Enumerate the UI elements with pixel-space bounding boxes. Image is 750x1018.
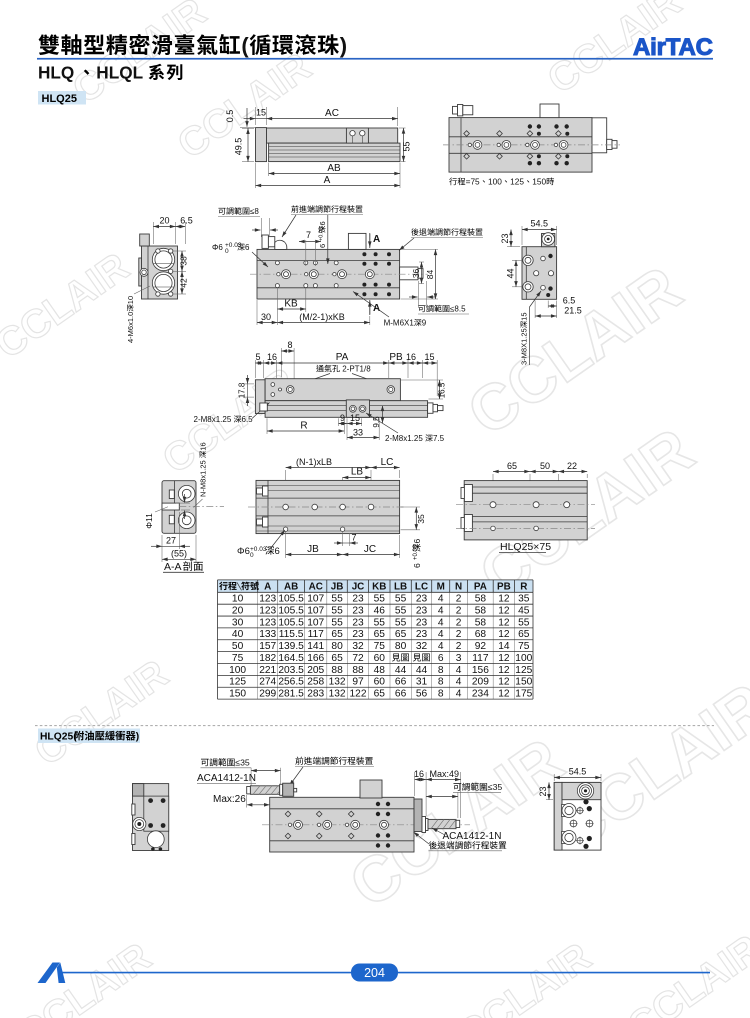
- svg-text:23: 23: [416, 629, 428, 640]
- svg-text:60: 60: [374, 653, 386, 664]
- svg-text:80: 80: [331, 641, 343, 652]
- svg-text:JC: JC: [352, 581, 365, 592]
- svg-text:JB: JB: [307, 544, 319, 555]
- svg-text:6.5: 6.5: [180, 216, 193, 226]
- svg-text:R: R: [520, 581, 527, 592]
- svg-text:55: 55: [331, 617, 343, 628]
- svg-text:Φ6: Φ6: [212, 243, 223, 252]
- svg-text:23: 23: [416, 617, 428, 628]
- svg-text:123: 123: [259, 617, 276, 628]
- svg-text:ACA1412-1N: ACA1412-1N: [197, 773, 256, 784]
- svg-text:182: 182: [259, 653, 276, 664]
- svg-text:2-PT1/8: 2-PT1/8: [340, 365, 371, 374]
- svg-text:KB: KB: [284, 299, 298, 310]
- svg-text:16: 16: [406, 352, 416, 362]
- svg-text:12: 12: [498, 605, 510, 616]
- svg-text:LC: LC: [381, 457, 394, 468]
- svg-text:105.5: 105.5: [278, 617, 304, 628]
- svg-text:≤35: ≤35: [488, 782, 503, 792]
- svg-text:35: 35: [416, 514, 426, 524]
- svg-text:12: 12: [498, 629, 510, 640]
- svg-text:36: 36: [411, 269, 421, 279]
- svg-text:=75: =75: [466, 177, 480, 187]
- svg-text:50: 50: [540, 461, 550, 471]
- svg-text:65: 65: [507, 461, 517, 471]
- svg-text:27: 27: [166, 536, 176, 546]
- svg-text:23: 23: [352, 629, 364, 640]
- svg-text:21.5: 21.5: [564, 306, 582, 316]
- svg-text:84: 84: [425, 270, 435, 280]
- svg-text:58: 58: [475, 594, 487, 605]
- svg-text:54.5: 54.5: [569, 767, 587, 777]
- svg-text:6: 6: [438, 653, 444, 664]
- svg-text:23: 23: [500, 233, 510, 243]
- svg-text:42: 42: [179, 278, 189, 288]
- svg-text:2: 2: [456, 641, 462, 652]
- svg-text:107: 107: [307, 594, 324, 605]
- svg-text:65: 65: [395, 629, 407, 640]
- svg-text:166: 166: [307, 653, 324, 664]
- svg-text:JB: JB: [331, 581, 344, 592]
- svg-text:44: 44: [506, 268, 516, 278]
- svg-text:164.5: 164.5: [278, 653, 304, 664]
- svg-text:23: 23: [352, 605, 364, 616]
- svg-text:115.5: 115.5: [279, 629, 304, 640]
- svg-text:46: 46: [374, 605, 386, 616]
- svg-text:4: 4: [456, 665, 462, 676]
- svg-text:157: 157: [259, 641, 276, 652]
- svg-text:0.5: 0.5: [225, 110, 235, 123]
- svg-text:(N-1)xLB: (N-1)xLB: [296, 457, 332, 467]
- svg-text:2-M8x1.25: 2-M8x1.25: [194, 415, 234, 424]
- svg-text:AirTAC: AirTAC: [633, 34, 713, 61]
- svg-text:45: 45: [518, 605, 530, 616]
- svg-text:30: 30: [232, 617, 244, 628]
- svg-text:209: 209: [472, 677, 489, 688]
- svg-text:105.5: 105.5: [278, 605, 304, 616]
- svg-text:66: 66: [395, 677, 407, 688]
- svg-text:12: 12: [498, 653, 510, 664]
- svg-text:): ): [340, 33, 347, 58]
- svg-text:KB: KB: [372, 581, 386, 592]
- svg-text:23: 23: [538, 786, 548, 796]
- svg-text:283: 283: [307, 689, 324, 700]
- svg-text:6: 6: [275, 546, 280, 557]
- svg-text:8: 8: [438, 677, 444, 688]
- svg-text:AB: AB: [327, 163, 341, 174]
- svg-text:205: 205: [307, 665, 324, 676]
- svg-text:15: 15: [350, 413, 360, 423]
- svg-text:3-M8X1.25: 3-M8X1.25: [520, 328, 529, 365]
- svg-text:258: 258: [307, 677, 324, 688]
- svg-text:65: 65: [331, 653, 343, 664]
- svg-text:23: 23: [352, 617, 364, 628]
- svg-text:4: 4: [438, 641, 444, 652]
- svg-text:55: 55: [374, 617, 386, 628]
- svg-text:N: N: [455, 581, 462, 592]
- svg-text:75: 75: [232, 653, 244, 664]
- svg-text:15: 15: [256, 108, 266, 118]
- svg-text:50: 50: [232, 641, 244, 652]
- svg-text:A: A: [324, 175, 331, 186]
- svg-text:58: 58: [475, 605, 487, 616]
- svg-text:AC: AC: [309, 581, 323, 592]
- svg-text:AB: AB: [284, 581, 298, 592]
- svg-text:72: 72: [352, 653, 364, 664]
- svg-text:Max:26: Max:26: [213, 794, 246, 805]
- svg-text:15: 15: [424, 352, 434, 362]
- svg-text:HLQL: HLQL: [96, 63, 143, 83]
- svg-text:150: 150: [515, 677, 532, 688]
- svg-text:2: 2: [456, 629, 462, 640]
- svg-text:2: 2: [456, 605, 462, 616]
- svg-text:16: 16: [267, 352, 277, 362]
- svg-text:20: 20: [159, 216, 169, 226]
- svg-text:≤8.5: ≤8.5: [450, 305, 466, 314]
- svg-text:40: 40: [232, 629, 244, 640]
- svg-text:LB: LB: [351, 467, 364, 478]
- svg-text:15: 15: [520, 312, 529, 320]
- svg-text:23: 23: [416, 594, 428, 605]
- svg-text:6: 6: [318, 221, 327, 225]
- svg-text:132: 132: [329, 677, 346, 688]
- svg-text:LB: LB: [394, 581, 407, 592]
- svg-text:4-M6x1.0: 4-M6x1.0: [126, 312, 135, 343]
- svg-text:44: 44: [395, 665, 407, 676]
- svg-text:6.5: 6.5: [242, 415, 254, 424]
- svg-text:123: 123: [259, 605, 276, 616]
- svg-text:(: (: [241, 33, 249, 58]
- svg-text:N-M8x1.25: N-M8x1.25: [199, 458, 208, 497]
- svg-text:30: 30: [261, 312, 271, 322]
- svg-text:M: M: [437, 581, 445, 592]
- svg-text:55: 55: [331, 605, 343, 616]
- svg-text:4: 4: [438, 605, 444, 616]
- svg-text:55: 55: [395, 594, 407, 605]
- svg-text:133: 133: [259, 629, 276, 640]
- svg-text:12: 12: [498, 594, 510, 605]
- svg-text:8: 8: [438, 665, 444, 676]
- svg-text:PB: PB: [497, 581, 511, 592]
- svg-text:7.5: 7.5: [433, 434, 445, 443]
- svg-text:8: 8: [438, 689, 444, 700]
- svg-text:A: A: [373, 234, 380, 245]
- svg-text:≤8: ≤8: [250, 207, 259, 216]
- svg-text:20: 20: [232, 605, 244, 616]
- svg-text:117: 117: [308, 629, 325, 640]
- svg-text:68: 68: [475, 629, 487, 640]
- svg-text:175: 175: [515, 689, 532, 700]
- svg-text:JC: JC: [364, 544, 376, 555]
- svg-text:107: 107: [307, 605, 324, 616]
- svg-text:150: 150: [532, 177, 546, 187]
- svg-text:65: 65: [518, 629, 530, 640]
- svg-text:Max:49: Max:49: [430, 769, 460, 779]
- svg-text:66: 66: [395, 689, 407, 700]
- svg-text:4: 4: [438, 617, 444, 628]
- svg-text:55: 55: [518, 617, 530, 628]
- svg-text:23: 23: [416, 605, 428, 616]
- svg-text:12: 12: [498, 617, 510, 628]
- svg-text:3: 3: [456, 653, 462, 664]
- svg-text:2: 2: [456, 617, 462, 628]
- svg-text:23: 23: [352, 594, 364, 605]
- svg-text:150: 150: [229, 689, 246, 700]
- svg-text:4: 4: [456, 689, 462, 700]
- svg-text:6.5: 6.5: [563, 296, 576, 306]
- svg-text:HLQ: HLQ: [38, 63, 74, 83]
- svg-text:65: 65: [374, 689, 386, 700]
- svg-text:122: 122: [350, 689, 367, 700]
- svg-text:10: 10: [126, 296, 135, 304]
- svg-text:75: 75: [518, 641, 530, 652]
- svg-text:4: 4: [438, 629, 444, 640]
- svg-text:123: 123: [259, 594, 276, 605]
- svg-text:125: 125: [229, 677, 246, 688]
- svg-text:4: 4: [456, 677, 462, 688]
- svg-text:274: 274: [259, 677, 276, 688]
- svg-text:44: 44: [416, 665, 428, 676]
- svg-text:6: 6: [245, 243, 250, 252]
- svg-text:A-A: A-A: [164, 561, 182, 573]
- svg-text:100: 100: [229, 665, 246, 676]
- svg-text:(55): (55): [171, 549, 187, 559]
- svg-text:32: 32: [416, 641, 428, 652]
- svg-text:31: 31: [416, 677, 428, 688]
- svg-text:80: 80: [395, 641, 407, 652]
- svg-text:6: 6: [412, 563, 422, 568]
- svg-text:55: 55: [374, 594, 386, 605]
- svg-text:Φ6: Φ6: [237, 546, 250, 557]
- svg-text:PA: PA: [474, 581, 487, 592]
- svg-text:100: 100: [515, 653, 532, 664]
- svg-text:6: 6: [412, 539, 422, 544]
- svg-text:49.5: 49.5: [234, 138, 244, 156]
- svg-text:HLQ25×75: HLQ25×75: [500, 541, 551, 553]
- svg-text:17.8: 17.8: [238, 382, 247, 398]
- svg-text:100: 100: [488, 177, 502, 187]
- svg-text:56: 56: [416, 689, 428, 700]
- svg-text:234: 234: [472, 689, 489, 700]
- svg-text:4: 4: [438, 594, 444, 605]
- svg-text:16: 16: [199, 442, 208, 450]
- svg-text:58: 58: [475, 617, 487, 628]
- svg-text:221: 221: [259, 665, 276, 676]
- svg-text:8: 8: [287, 340, 292, 350]
- svg-text:125: 125: [510, 177, 524, 187]
- svg-text:65: 65: [374, 629, 386, 640]
- svg-text:32: 32: [352, 641, 364, 652]
- svg-text:60: 60: [374, 677, 386, 688]
- svg-text:55: 55: [395, 617, 407, 628]
- svg-text:139.5: 139.5: [278, 641, 304, 652]
- svg-text:55: 55: [331, 594, 343, 605]
- svg-text:A: A: [264, 581, 271, 592]
- svg-text:PA: PA: [336, 352, 349, 363]
- svg-text:5: 5: [255, 352, 260, 362]
- svg-text:2: 2: [456, 594, 462, 605]
- svg-text:55: 55: [395, 605, 407, 616]
- svg-text:33: 33: [353, 428, 363, 438]
- svg-text:97: 97: [352, 677, 364, 688]
- svg-text:ACA1412-1N: ACA1412-1N: [443, 831, 502, 842]
- svg-text:22: 22: [567, 461, 577, 471]
- svg-text:75: 75: [374, 641, 386, 652]
- svg-text:12: 12: [498, 677, 510, 688]
- svg-text:256.5: 256.5: [278, 677, 304, 688]
- svg-text:7: 7: [351, 533, 356, 543]
- svg-text:88: 88: [331, 665, 343, 676]
- svg-text:16.5: 16.5: [438, 382, 447, 398]
- svg-text:7: 7: [306, 230, 311, 240]
- svg-text:54.5: 54.5: [531, 219, 549, 229]
- svg-text:): ): [136, 732, 139, 743]
- svg-text:9: 9: [422, 319, 427, 328]
- svg-text:6: 6: [318, 244, 327, 248]
- svg-text:14: 14: [498, 641, 510, 652]
- svg-text:203.5: 203.5: [278, 665, 304, 676]
- svg-text:≤35: ≤35: [235, 758, 250, 768]
- svg-text:141: 141: [307, 641, 324, 652]
- svg-text:9: 9: [340, 413, 345, 423]
- svg-text:LC: LC: [415, 581, 428, 592]
- svg-text:12: 12: [498, 689, 510, 700]
- svg-text:0: 0: [225, 248, 229, 255]
- svg-text:117: 117: [472, 653, 489, 664]
- svg-text:16: 16: [414, 769, 424, 779]
- svg-text:132: 132: [329, 689, 346, 700]
- svg-text:92: 92: [475, 641, 487, 652]
- svg-text:M-M6X1: M-M6X1: [384, 319, 415, 328]
- svg-text:107: 107: [307, 617, 324, 628]
- svg-text:R: R: [300, 421, 307, 432]
- svg-text:38: 38: [179, 256, 189, 266]
- svg-text:48: 48: [374, 665, 386, 676]
- svg-text:12: 12: [498, 665, 510, 676]
- svg-text:105.5: 105.5: [278, 594, 304, 605]
- svg-text:156: 156: [472, 665, 489, 676]
- svg-text:281.5: 281.5: [278, 689, 304, 700]
- svg-text:PB: PB: [389, 352, 403, 363]
- svg-text:0: 0: [250, 552, 254, 559]
- svg-text:AC: AC: [325, 108, 339, 119]
- svg-text:Φ11: Φ11: [144, 513, 154, 529]
- svg-text:204: 204: [364, 966, 385, 980]
- svg-text:2-M8x1.25: 2-M8x1.25: [385, 434, 425, 443]
- svg-text:299: 299: [259, 689, 276, 700]
- svg-text:88: 88: [352, 665, 364, 676]
- svg-text:65: 65: [331, 629, 343, 640]
- svg-text:125: 125: [515, 665, 532, 676]
- svg-text:10: 10: [232, 594, 244, 605]
- svg-text:35: 35: [518, 594, 530, 605]
- svg-text:HLQ25: HLQ25: [42, 93, 77, 105]
- svg-text:(M/2-1)xKB: (M/2-1)xKB: [299, 312, 345, 322]
- svg-text:HLQ25(: HLQ25(: [40, 732, 77, 743]
- svg-text:55: 55: [402, 141, 412, 151]
